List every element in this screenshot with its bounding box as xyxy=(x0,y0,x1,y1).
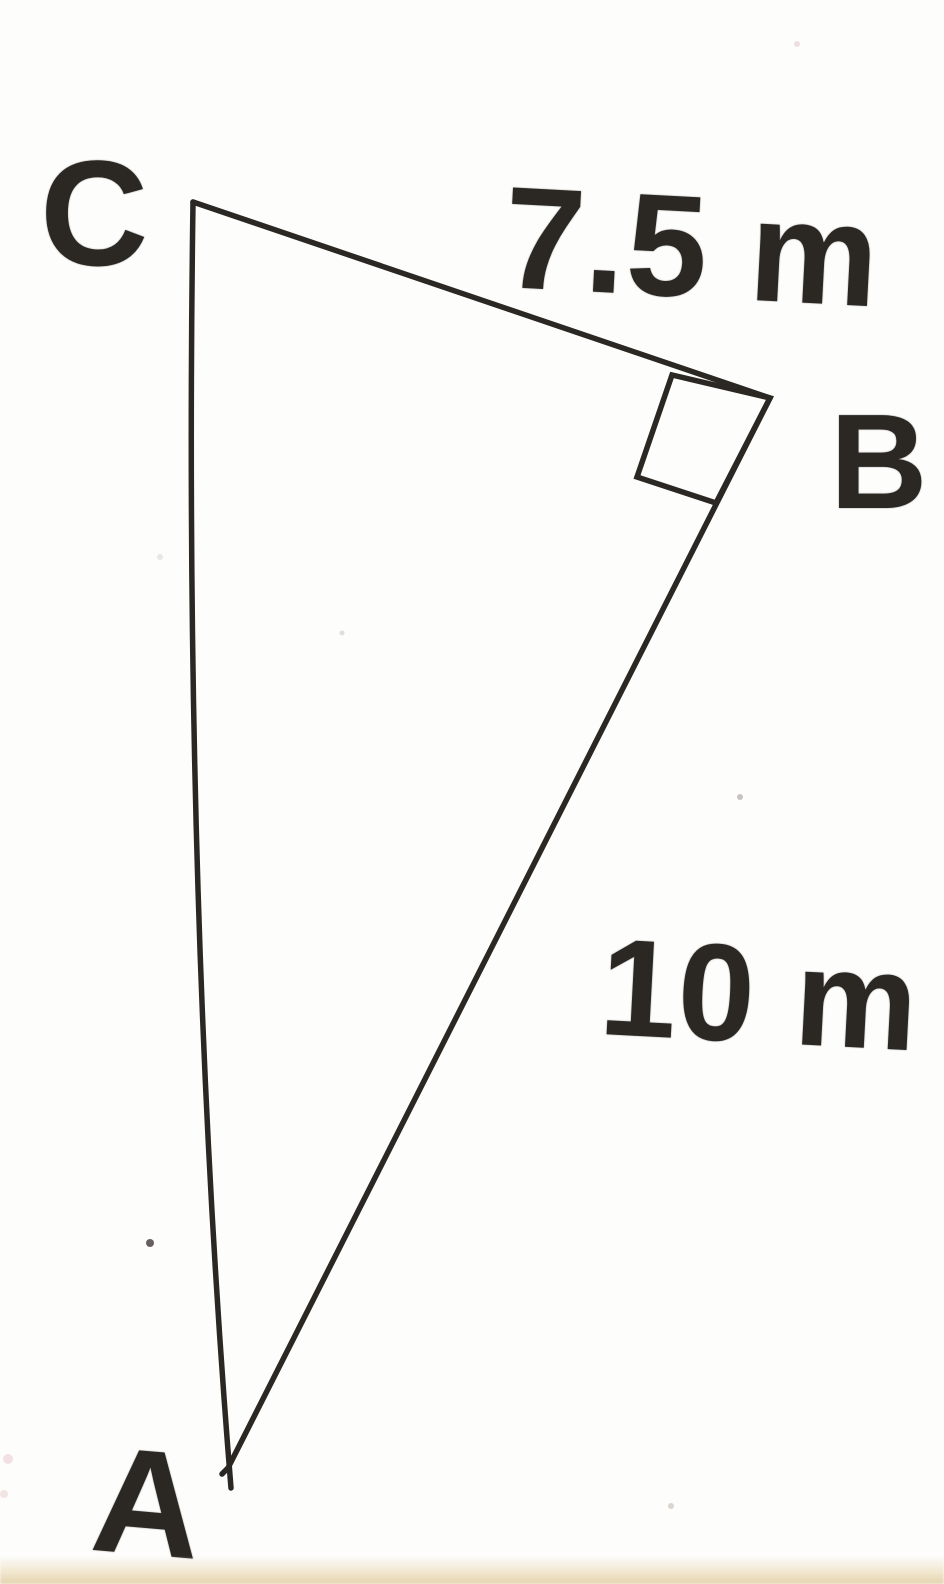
vertex-label-b: B xyxy=(830,394,929,529)
side-label-ab: 10 m xyxy=(597,918,922,1072)
side-label-cb: 7.5 m xyxy=(500,165,883,329)
scanned-page: C B A 7.5 m 10 m xyxy=(0,0,944,1584)
scan-artifact-bottom-band xyxy=(0,1556,944,1584)
right-angle-marker-icon xyxy=(637,375,770,503)
vertex-label-c: C xyxy=(40,138,149,288)
edge-ca xyxy=(191,202,231,1488)
